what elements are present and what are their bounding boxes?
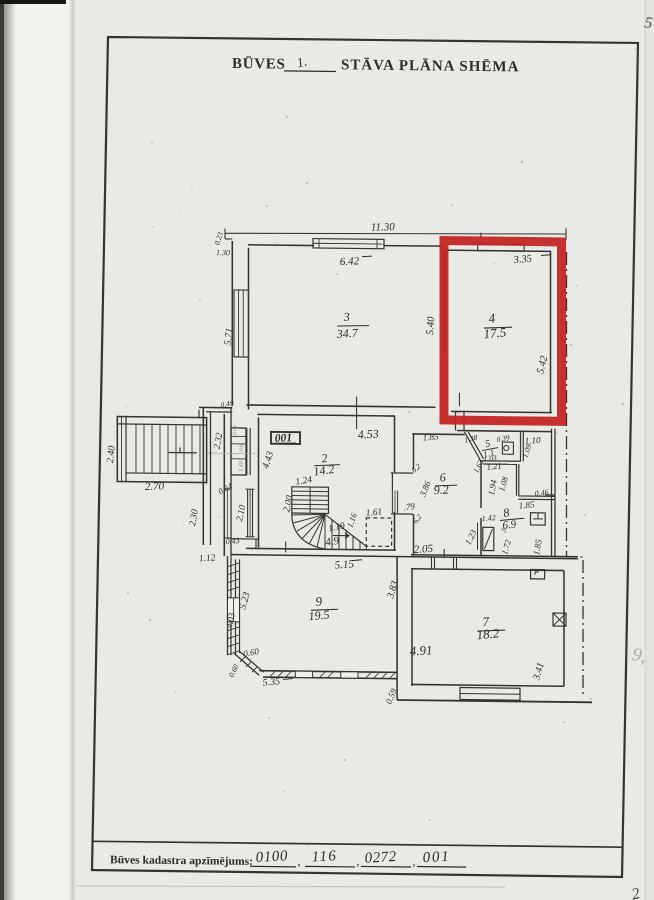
svg-text:2.70: 2.70 [145, 480, 165, 493]
svg-text:0272: 0272 [364, 849, 397, 867]
svg-text:18.2: 18.2 [476, 625, 501, 642]
svg-text:-0.6: -0.6 [239, 444, 245, 453]
svg-text:1.30: 1.30 [216, 248, 230, 257]
svg-text:11.30: 11.30 [371, 221, 396, 234]
svg-text:6.42: 6.42 [340, 255, 360, 268]
svg-text:17.5: 17.5 [483, 324, 508, 341]
svg-text:1.21: 1.21 [486, 461, 502, 472]
svg-text:001: 001 [422, 849, 451, 867]
svg-text:4.9: 4.9 [324, 535, 340, 549]
svg-text:116: 116 [311, 848, 338, 865]
svg-text:1.85: 1.85 [422, 431, 439, 442]
svg-text:5.40: 5.40 [425, 315, 437, 335]
svg-text:STĀVA PLĀNA SHĒMA: STĀVA PLĀNA SHĒMA [341, 57, 519, 75]
svg-text:5.71: 5.71 [223, 327, 236, 346]
svg-text:5.15: 5.15 [334, 558, 355, 571]
svg-text:5.35: 5.35 [262, 676, 281, 689]
svg-text:.79: .79 [403, 501, 416, 512]
svg-text:0+3: 0+3 [233, 425, 239, 435]
svg-text:1.61: 1.61 [365, 507, 383, 518]
svg-text:2.05: 2.05 [413, 543, 434, 556]
svg-text:0100: 0100 [255, 848, 288, 866]
svg-text:34.7: 34.7 [335, 326, 359, 341]
svg-text:3: 3 [342, 310, 350, 324]
svg-text:1.10: 1.10 [524, 435, 541, 446]
svg-text:14.2: 14.2 [312, 462, 335, 479]
svg-text:19.5: 19.5 [308, 607, 330, 623]
svg-text:Būves kadastra apzīmējums:: Būves kadastra apzīmējums: [110, 853, 253, 868]
svg-text:1.12: 1.12 [199, 553, 217, 564]
svg-text:1.42: 1.42 [481, 513, 496, 523]
svg-text:1.40: 1.40 [238, 461, 245, 472]
svg-text:3.35: 3.35 [512, 254, 532, 267]
svg-text:,: , [413, 854, 416, 868]
svg-text:,: , [357, 854, 360, 868]
svg-text:,: , [298, 854, 301, 868]
svg-text:4.53: 4.53 [357, 427, 379, 442]
svg-text:4.91: 4.91 [409, 642, 433, 658]
svg-text:2.40: 2.40 [105, 445, 118, 464]
svg-text:9.2: 9.2 [433, 482, 449, 497]
svg-text:1.85: 1.85 [518, 499, 535, 510]
svg-text:BŪVES: BŪVES [232, 56, 286, 73]
svg-text:0.43: 0.43 [225, 536, 240, 546]
